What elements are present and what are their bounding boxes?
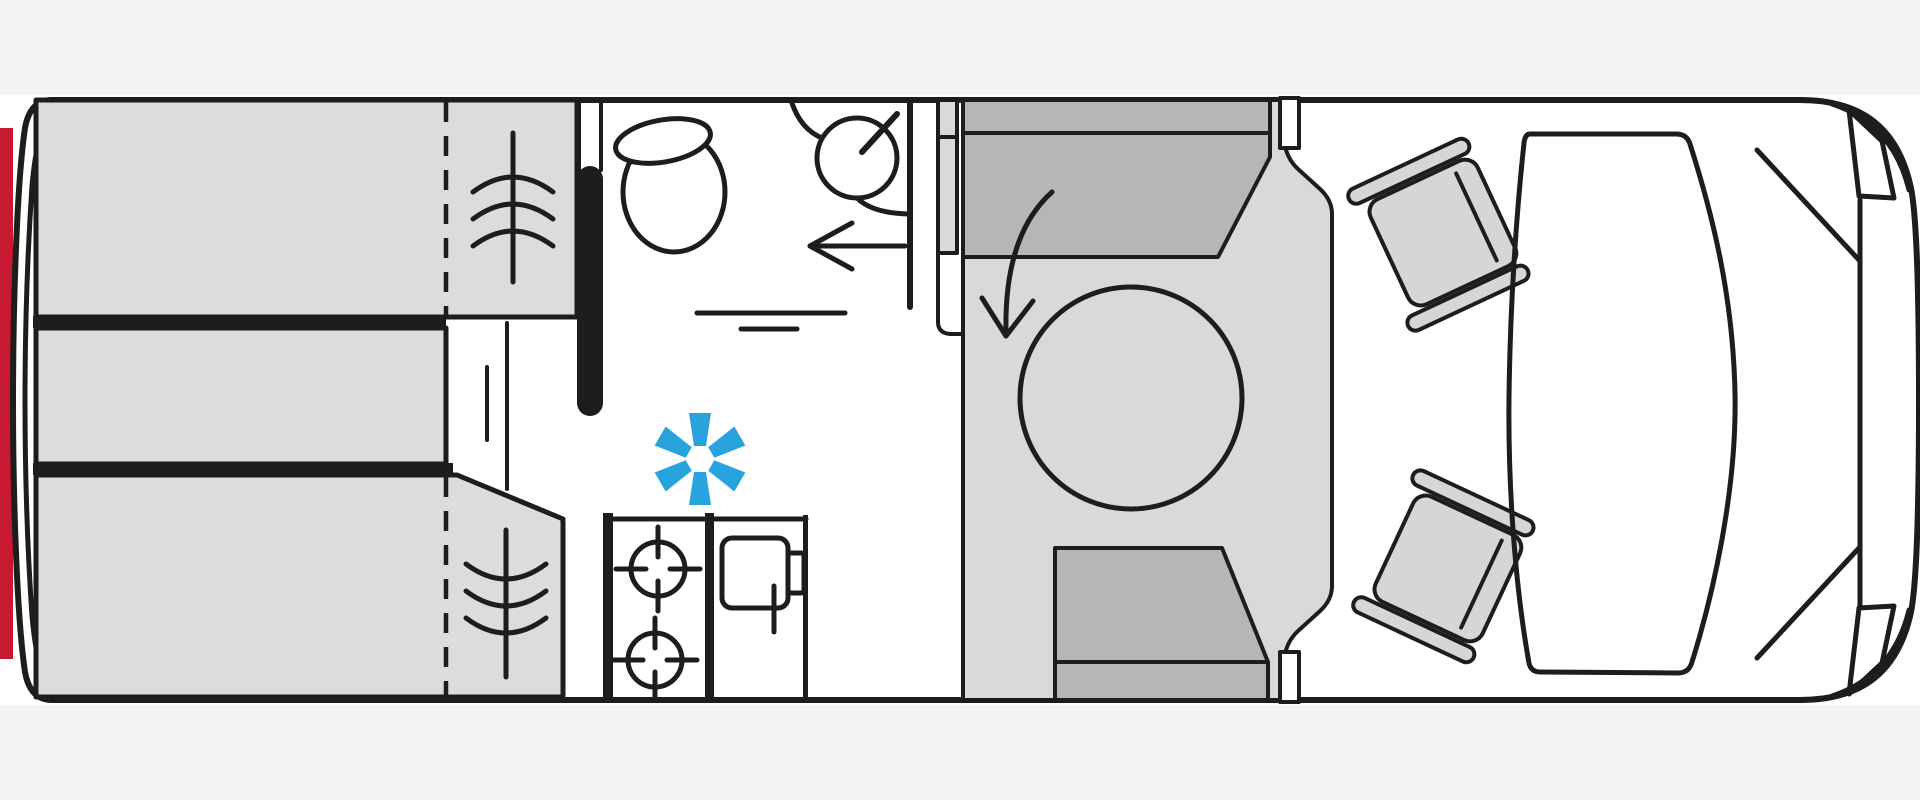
lower-bed	[36, 475, 563, 697]
washroom	[612, 100, 910, 329]
rear-bench-cushion	[963, 133, 1270, 257]
bed-divider-bar-lower	[33, 463, 453, 475]
side-door-pillar-top	[1280, 98, 1299, 148]
washroom-partition-wall	[577, 100, 603, 416]
windscreen	[1509, 134, 1735, 673]
passenger-swivel-seat	[1351, 468, 1537, 665]
kitchen-sink-icon	[722, 538, 804, 632]
entrance-step	[938, 100, 962, 334]
round-table	[1020, 287, 1242, 509]
toilet-icon	[612, 112, 725, 252]
counter-divider-left	[603, 513, 613, 703]
counter-divider-rightend	[803, 515, 808, 703]
hob-burner-1-icon	[616, 527, 700, 611]
rear-bed-area	[33, 100, 577, 697]
hob-burner-2-icon	[613, 618, 697, 698]
counter-divider-mid	[705, 513, 714, 703]
top-margin-band	[0, 0, 1920, 95]
campervan-floor-plan	[0, 0, 1920, 800]
kitchen-block	[603, 513, 808, 703]
frost-asterisk-icon	[655, 413, 746, 505]
front-bench-backrest	[1055, 662, 1268, 700]
bed-divider-bar-upper	[33, 316, 446, 328]
corner-basin-icon	[791, 100, 908, 214]
partition-wall-black-bar	[577, 166, 603, 416]
rear-bench-seat	[963, 100, 1270, 257]
dinette-area	[963, 98, 1332, 702]
sink-tap-handle	[788, 553, 804, 593]
entry-arrow-icon	[810, 223, 905, 269]
floor-plan-canvas	[0, 0, 1920, 800]
middle-bed	[36, 328, 446, 464]
rear-bench-backrest	[963, 100, 1270, 133]
a-pillars	[1757, 150, 1860, 658]
driver-swivel-seat	[1346, 136, 1532, 333]
cab-area	[1346, 104, 1909, 696]
side-door-pillar-bottom	[1280, 652, 1299, 702]
bottom-margin-band	[0, 705, 1920, 800]
